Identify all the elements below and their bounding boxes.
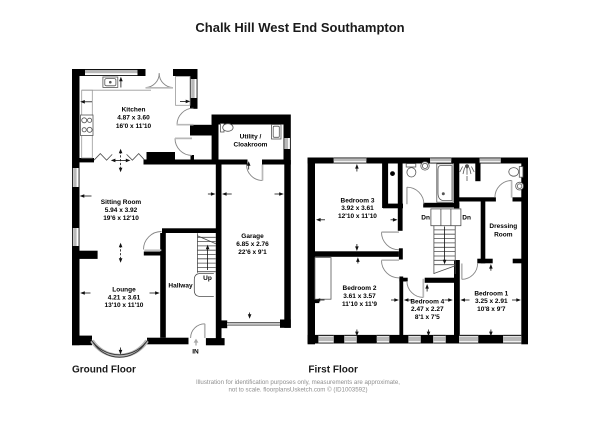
svg-text:Garage: Garage [241,233,264,240]
svg-text:Cloakroom: Cloakroom [234,142,268,149]
svg-text:3.61 x 3.57: 3.61 x 3.57 [343,293,376,300]
svg-text:Bedroom 3: Bedroom 3 [341,197,375,204]
svg-text:Dressing: Dressing [489,223,517,230]
svg-text:Bedroom 1: Bedroom 1 [474,290,508,297]
svg-text:Sitting Room: Sitting Room [101,199,142,206]
svg-text:Chalk Hill West End Southampto: Chalk Hill West End Southampton [195,20,404,35]
svg-text:22'6 x 9'1: 22'6 x 9'1 [238,249,267,256]
svg-text:First Floor: First Floor [308,364,358,375]
svg-text:4.21 x 3.61: 4.21 x 3.61 [108,294,141,301]
svg-text:8'1 x 7'5: 8'1 x 7'5 [415,314,440,321]
svg-text:Utility /: Utility / [240,134,262,141]
svg-text:4.87 x 3.60: 4.87 x 3.60 [117,115,150,122]
svg-text:Bedroom 2: Bedroom 2 [343,285,377,292]
svg-text:3.25 x 2.91: 3.25 x 2.91 [475,298,508,305]
svg-text:Room: Room [494,231,513,238]
svg-text:3.92 x 3.61: 3.92 x 3.61 [341,205,374,212]
svg-text:5.94 x 3.92: 5.94 x 3.92 [105,207,138,214]
svg-text:2.47 x 2.27: 2.47 x 2.27 [411,306,444,313]
svg-text:19'6 x 12'10: 19'6 x 12'10 [103,215,139,222]
svg-text:6.85 x 2.76: 6.85 x 2.76 [236,241,269,248]
svg-text:Ground Floor: Ground Floor [72,364,136,375]
svg-text:Illustration for identificatio: Illustration for identification purposes… [196,379,400,386]
svg-text:Dn: Dn [462,215,471,222]
svg-text:Kitchen: Kitchen [122,106,146,113]
svg-text:not to scale. floorplansUsketc: not to scale. floorplansUsketch.com © (I… [228,387,367,394]
svg-text:12'10 x 11'10: 12'10 x 11'10 [338,213,377,220]
svg-text:11'10 x 11'9: 11'10 x 11'9 [342,301,377,308]
svg-text:IN: IN [192,349,199,356]
svg-text:Lounge: Lounge [112,287,136,294]
svg-text:Dn: Dn [421,215,430,222]
svg-text:Hallway: Hallway [168,283,193,290]
svg-text:16'0 x 11'10: 16'0 x 11'10 [116,123,152,130]
svg-text:Bedroom 4: Bedroom 4 [410,298,444,305]
svg-text:10'8 x 9'7: 10'8 x 9'7 [477,306,506,313]
svg-text:13'10 x 11'10: 13'10 x 11'10 [105,302,144,309]
svg-text:Up: Up [203,275,212,282]
